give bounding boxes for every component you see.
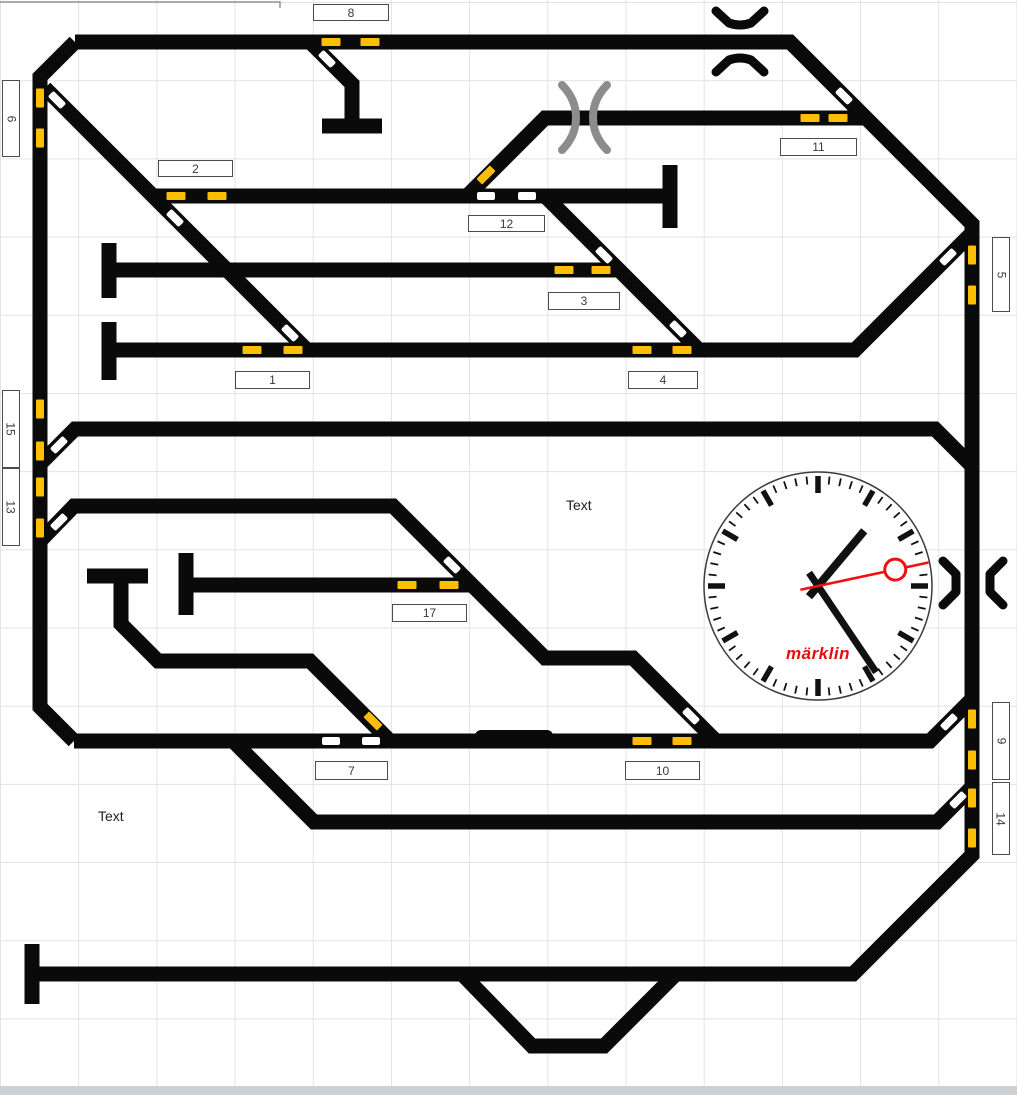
track-label-9[interactable]: 9	[992, 702, 1010, 780]
track-label-10[interactable]: 10	[625, 761, 700, 780]
track-label-13[interactable]: 13	[2, 468, 20, 546]
track-label-11[interactable]: 11	[780, 138, 857, 156]
text-annotation[interactable]: Text	[566, 497, 592, 513]
track-label-text: 3	[581, 294, 588, 308]
marklin-logo: märklin	[758, 644, 878, 664]
track-layout	[0, 0, 1017, 1095]
track-label-text: 10	[656, 764, 669, 778]
track-label-text: 1	[269, 373, 276, 387]
window-edge	[0, 2, 280, 8]
track-15[interactable]	[40, 429, 972, 466]
track-label-text: 5	[994, 271, 1008, 278]
text-annotation[interactable]: Text	[98, 808, 124, 824]
clock[interactable]	[704, 472, 932, 700]
track-label-text: 13	[4, 500, 18, 513]
track-label-text: 9	[994, 738, 1008, 745]
track-label-text: 7	[348, 764, 355, 778]
track-label-7[interactable]: 7	[315, 761, 388, 780]
track-bottom-dip[interactable]	[462, 974, 676, 1046]
track-label-15[interactable]: 15	[2, 390, 20, 468]
track-plan-canvas[interactable]: 86211125314151317710914 TextText märklin	[0, 0, 1017, 1095]
track-label-6[interactable]: 6	[2, 80, 20, 157]
track-label-text: 4	[660, 373, 667, 387]
track-label-3[interactable]: 3	[548, 292, 620, 310]
track-label-text: 14	[994, 812, 1008, 825]
track-branch-8[interactable]	[310, 42, 352, 119]
track-label-text: 6	[4, 115, 18, 122]
track-label-text: 15	[4, 422, 18, 435]
track-left-vertical[interactable]	[40, 42, 75, 741]
track-label-8[interactable]: 8	[313, 4, 389, 21]
track-label-text: 8	[348, 6, 355, 20]
track-label-12[interactable]: 12	[468, 215, 545, 232]
track-label-text: 12	[500, 217, 513, 231]
track-13[interactable]	[40, 506, 716, 741]
track-14[interactable]	[233, 741, 972, 822]
track-label-5[interactable]: 5	[992, 237, 1010, 312]
track-label-2[interactable]: 2	[158, 160, 233, 177]
bottom-edge	[0, 1086, 1017, 1095]
track-7[interactable]	[121, 569, 390, 741]
track-label-17[interactable]: 17	[392, 604, 467, 622]
track-label-text: 2	[192, 162, 199, 176]
track-label-1[interactable]: 1	[235, 371, 310, 389]
track-label-14[interactable]: 14	[992, 782, 1010, 855]
track-label-text: 11	[812, 140, 824, 154]
track-label-text: 17	[423, 606, 436, 620]
track-label-4[interactable]: 4	[628, 371, 698, 389]
